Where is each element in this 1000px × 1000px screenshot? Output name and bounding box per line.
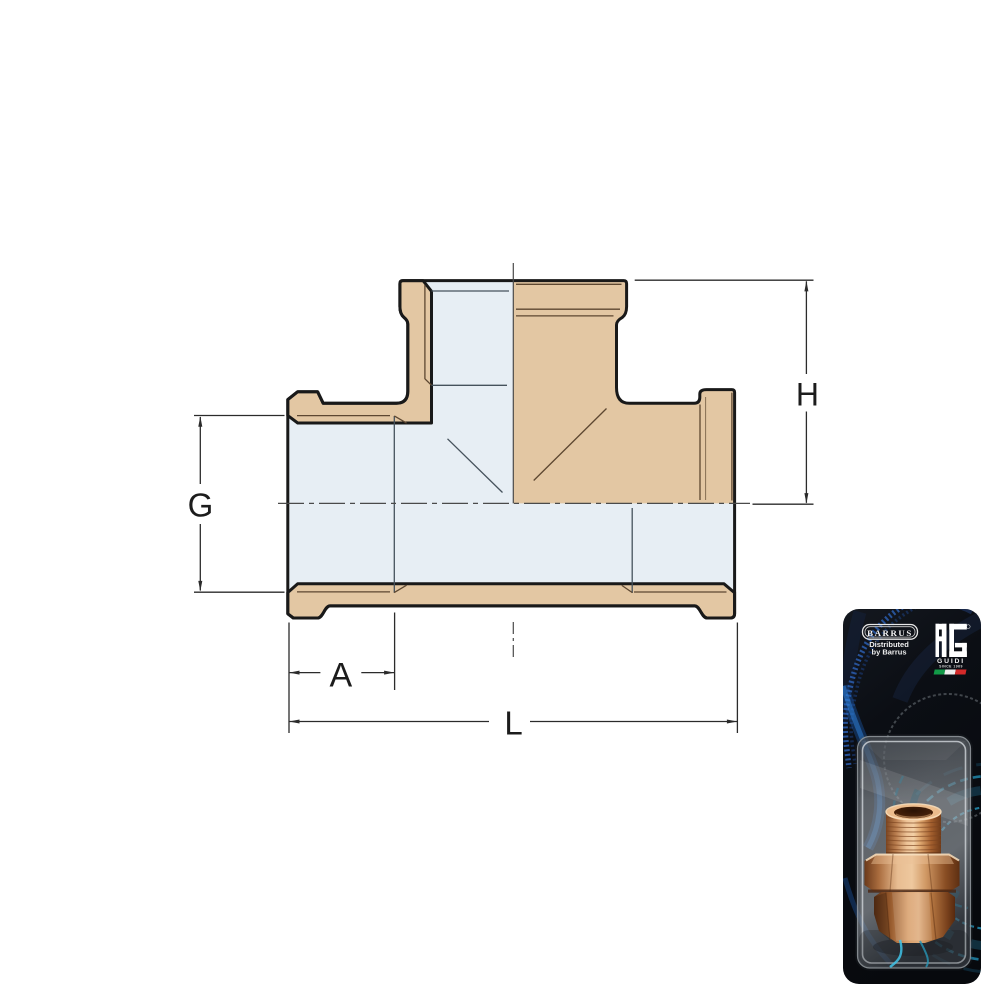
svg-text:G: G: [188, 486, 214, 523]
svg-text:L: L: [504, 705, 522, 742]
svg-text:by Barrus: by Barrus: [871, 648, 906, 657]
svg-text:A: A: [329, 657, 352, 695]
svg-text:SINCE 1969: SINCE 1969: [939, 665, 963, 669]
svg-text:BARRUS: BARRUS: [867, 628, 913, 638]
svg-text:H: H: [796, 377, 819, 413]
